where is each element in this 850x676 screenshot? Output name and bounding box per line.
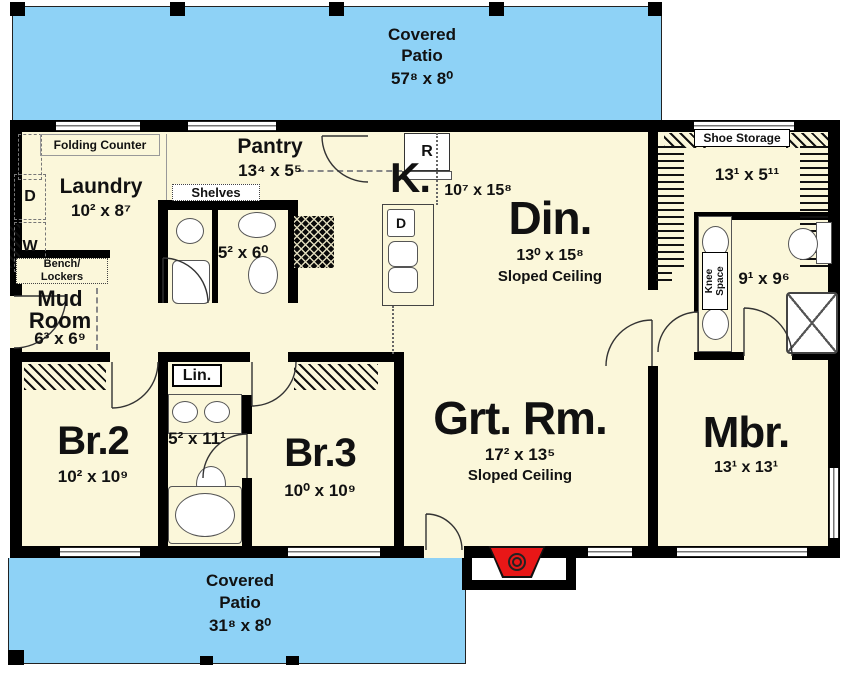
kitchen-upper-cabinet-dashed	[298, 170, 402, 172]
great-room-patio-door-gap	[424, 546, 464, 558]
island-sink-lower	[388, 267, 418, 293]
wall-mud-bottom	[10, 352, 110, 362]
shoe-closet-top-right-hatch	[786, 133, 828, 148]
window-mbr-bottom	[677, 547, 807, 557]
folding-counter-label: Folding Counter	[54, 138, 147, 152]
knee-label: Knee	[704, 269, 715, 293]
hall-bath-dims: 5² x 6⁰	[218, 244, 268, 262]
br3-name: Br.3	[284, 432, 356, 474]
shared-bath-dims: 5² x 11¹	[168, 430, 226, 448]
patio-top-title-2: Patio	[401, 47, 443, 65]
window-br3	[288, 547, 380, 557]
master-bath-toilet	[788, 228, 818, 260]
space-label: Space	[715, 266, 726, 295]
master-bath-dims: 9¹ x 9⁶	[738, 270, 789, 288]
br3-dims: 10⁰ x 10⁹	[284, 482, 356, 500]
window-pantry	[188, 121, 276, 131]
window-laundry	[56, 121, 140, 131]
wall-pantry-bottom	[158, 200, 298, 210]
wall-br3-great-room	[394, 352, 404, 556]
patio-top-title-1: Covered	[388, 26, 456, 44]
shoe-storage-labelbox: Shoe Storage	[694, 129, 790, 147]
patio-post	[489, 2, 504, 16]
patio-bottom-title-1: Covered	[206, 572, 274, 590]
laundry-dims: 10² x 8⁷	[71, 202, 131, 220]
br2-name: Br.2	[57, 420, 129, 462]
shelves-labelbox: Shelves	[172, 184, 260, 201]
window-br2	[60, 547, 140, 557]
wall-laundry-right	[158, 208, 168, 303]
patio-post	[200, 656, 213, 665]
patio-post	[648, 2, 662, 16]
shoe-storage-label: Shoe Storage	[703, 131, 780, 145]
master-bath-shower	[786, 292, 838, 354]
dishwasher-label: D	[396, 215, 406, 231]
patio-top-dims: 57⁸ x 8⁰	[391, 70, 453, 88]
knee-space-labelbox: Knee Space	[702, 252, 728, 310]
mud-room-entry-gap	[10, 296, 22, 348]
window-great-room	[588, 547, 632, 557]
bench-lockers-labelbox: Bench/ Lockers	[16, 258, 108, 284]
great-room-name: Grt. Rm.	[433, 394, 606, 442]
wall-bath-br3-lower	[242, 478, 252, 556]
patio-bottom-title-2: Patio	[219, 594, 261, 612]
shoe-closet-dims: 13¹ x 5¹¹	[715, 166, 779, 184]
window-mbr-right	[829, 468, 839, 538]
dining-dims: 13⁰ x 15⁸	[516, 248, 583, 265]
bench-label: Bench/	[44, 258, 81, 271]
washer-label: W	[22, 238, 37, 256]
mud-locker-dashed-line	[96, 288, 98, 350]
mud-room-name-1: Mud	[37, 287, 82, 310]
covered-patio-top	[12, 6, 662, 120]
patio-post	[8, 650, 24, 665]
fireplace-flue-inner	[512, 557, 522, 567]
br3-closet-hatch	[294, 364, 378, 390]
master-bath-toilet-tank	[816, 222, 832, 264]
patio-bottom-dims: 31⁸ x 8⁰	[209, 617, 271, 635]
wall-bath-br3-upper	[242, 395, 252, 434]
pantry-dims: 13⁴ x 5⁵	[238, 162, 302, 180]
wall-mbath-bottom-left	[694, 352, 744, 360]
hall-bath-pedestal-sink	[176, 218, 204, 244]
dryer-box: D	[14, 174, 46, 220]
kitchen-soffit-dotted-1	[436, 133, 438, 205]
dryer-label: D	[24, 188, 36, 206]
br2-closet-hatch	[24, 364, 106, 390]
shared-bath-sink-right	[204, 401, 230, 423]
shared-bath-sink-left	[172, 401, 198, 423]
kitchen-dims: 10⁷ x 15⁸	[444, 183, 512, 200]
wall-br3-top	[288, 352, 400, 362]
pantry-name: Pantry	[237, 136, 302, 158]
great-room-dims: 17² x 13⁵	[485, 446, 555, 464]
mud-room-dims: 6³ x 6⁹	[34, 330, 86, 348]
pantry-counter-edge	[166, 134, 167, 200]
wall-greatroom-mbr	[648, 366, 658, 556]
kitchen-name: K.	[390, 156, 430, 200]
patio-post	[10, 2, 25, 16]
dishwasher: D	[387, 209, 415, 237]
br2-dims: 10² x 10⁹	[58, 468, 128, 486]
shared-bath-tub-basin	[175, 493, 235, 537]
mbr-name: Mbr.	[703, 410, 789, 456]
range-stove	[294, 216, 334, 268]
linen-label: Lin.	[183, 367, 211, 385]
shelves-label: Shelves	[191, 185, 240, 200]
floor-plan: D W R D	[0, 0, 850, 676]
linen-labelbox: Lin.	[172, 364, 222, 387]
lockers-label: Lockers	[41, 271, 83, 284]
laundry-name: Laundry	[60, 176, 143, 198]
patio-post	[286, 656, 299, 665]
patio-post	[329, 2, 344, 16]
great-room-note: Sloped Ceiling	[468, 468, 572, 484]
wall-br2-right	[158, 362, 168, 556]
mbr-dims: 13¹ x 13¹	[714, 460, 778, 477]
kitchen-soffit-dotted-2	[392, 306, 394, 354]
wall-hall-lin-top	[158, 352, 250, 362]
patio-post	[170, 2, 185, 16]
corridor-closet-hatch	[656, 216, 672, 286]
island-sink-upper	[388, 241, 418, 267]
hall-bath-sink	[238, 212, 276, 238]
master-bath-sink-lower	[702, 308, 729, 340]
folding-counter-box: Folding Counter	[40, 134, 160, 156]
dining-note: Sloped Ceiling	[498, 269, 602, 285]
dining-name: Din.	[509, 194, 592, 242]
hall-bath-shower	[172, 260, 210, 304]
